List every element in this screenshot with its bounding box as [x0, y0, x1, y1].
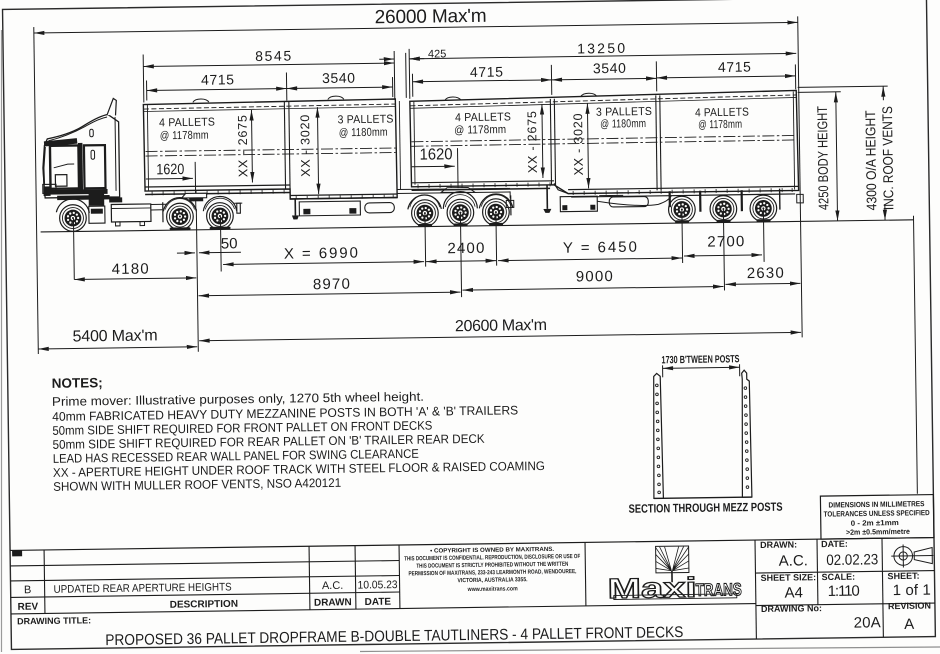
svg-text:A4: A4: [784, 584, 803, 601]
svg-text:DRAWN: DRAWN: [314, 597, 352, 609]
svg-text:1620: 1620: [419, 146, 452, 163]
svg-text:2400: 2400: [447, 240, 484, 258]
svg-text:8545: 8545: [255, 47, 291, 64]
svg-text:SHEET:: SHEET:: [887, 571, 919, 581]
svg-text:www.maxitrans.com: www.maxitrans.com: [467, 586, 518, 593]
svg-text:A: A: [904, 616, 914, 633]
svg-text:UPDATED REAR APERTURE HEIGHTS: UPDATED REAR APERTURE HEIGHTS: [54, 581, 232, 595]
svg-text:INC. ROOF VENTS: INC. ROOF VENTS: [879, 106, 896, 210]
svg-text:20A: 20A: [854, 614, 881, 631]
svg-text:@ 1178mm: @ 1178mm: [160, 130, 209, 143]
svg-text:DRAWN:: DRAWN:: [760, 539, 797, 550]
svg-text:50: 50: [221, 235, 238, 252]
svg-text:VICTORIA, AUSTRALIA 3355.: VICTORIA, AUSTRALIA 3355.: [458, 577, 528, 584]
svg-text:3 PALLETS: 3 PALLETS: [338, 114, 394, 127]
svg-text:4300 O/A HEIGHT: 4300 O/A HEIGHT: [862, 110, 879, 211]
svg-text:13250: 13250: [577, 40, 625, 57]
svg-text:XX - 3020: XX - 3020: [571, 113, 586, 175]
svg-text:XX - 2675: XX - 2675: [236, 115, 251, 177]
svg-text:8970: 8970: [313, 276, 350, 294]
svg-text:TRANS: TRANS: [696, 579, 742, 600]
svg-text:A.C.: A.C.: [322, 580, 344, 592]
svg-text:02.02.23: 02.02.23: [826, 551, 878, 569]
svg-text:3 PALLETS: 3 PALLETS: [596, 106, 652, 119]
svg-text:DATE:: DATE:: [821, 539, 848, 549]
svg-text:DRAWING TITLE:: DRAWING TITLE:: [17, 615, 91, 626]
svg-text:1620: 1620: [156, 161, 184, 178]
svg-text:2630: 2630: [747, 265, 784, 283]
svg-text:26000 Max'm: 26000 Max'm: [375, 6, 487, 29]
svg-text:10.05.23: 10.05.23: [358, 579, 398, 592]
svg-text:1730 B'TWEEN POSTS: 1730 B'TWEEN POSTS: [661, 353, 739, 366]
svg-text:DRAWING No:: DRAWING No:: [761, 603, 822, 614]
svg-text:9000: 9000: [576, 268, 613, 286]
svg-text:2700: 2700: [707, 233, 744, 251]
svg-text:@ 1178mm: @ 1178mm: [698, 119, 742, 132]
svg-text:DATE: DATE: [365, 597, 392, 608]
svg-text:1:110: 1:110: [828, 583, 860, 600]
svg-text:4 PALLETS: 4 PALLETS: [695, 107, 749, 120]
svg-text:>2m ±0.5mm/metre: >2m ±0.5mm/metre: [846, 527, 910, 537]
svg-text:@ 1180mm: @ 1180mm: [339, 127, 388, 140]
svg-text:@ 1180mm: @ 1180mm: [600, 118, 646, 131]
svg-text:XX - 2675: XX - 2675: [525, 111, 540, 173]
svg-text:X = 6990: X = 6990: [284, 245, 358, 263]
svg-text:3540: 3540: [593, 60, 626, 76]
svg-text:1 of 1: 1 of 1: [893, 582, 931, 600]
svg-text:• COPYRIGHT IS OWNED BY MAXITR: • COPYRIGHT IS OWNED BY MAXITRANS.: [430, 547, 554, 555]
svg-text:3540: 3540: [322, 70, 355, 86]
svg-text:5400 Max'm: 5400 Max'm: [72, 327, 157, 345]
svg-text:4180: 4180: [112, 260, 149, 278]
svg-text:4715: 4715: [201, 71, 234, 87]
svg-text:Y = 6450: Y = 6450: [563, 239, 637, 257]
svg-text:4250 BODY HEIGHT: 4250 BODY HEIGHT: [814, 106, 831, 211]
svg-text:NOTES;: NOTES;: [52, 375, 103, 391]
svg-text:SHEET SIZE:: SHEET SIZE:: [760, 572, 816, 583]
svg-text:TOLERANCES UNLESS SPECIFIED: TOLERANCES UNLESS SPECIFIED: [824, 508, 931, 518]
svg-text:SECTION THROUGH MEZZ POSTS: SECTION THROUGH MEZZ POSTS: [628, 500, 782, 516]
svg-text:20600 Max'm: 20600 Max'm: [455, 317, 547, 335]
svg-text:PERMISSION OF MAXITRANS, 233-2: PERMISSION OF MAXITRANS, 233-243 LEARMON…: [408, 569, 576, 577]
svg-text:4715: 4715: [470, 64, 503, 80]
svg-text:4 PALLETS: 4 PALLETS: [159, 117, 215, 130]
svg-text:SCALE:: SCALE:: [821, 572, 855, 582]
svg-text:4 PALLETS: 4 PALLETS: [455, 111, 511, 124]
svg-text:REV: REV: [18, 602, 39, 613]
svg-text:SHOWN WITH MULLER ROOF VENTS,: SHOWN WITH MULLER ROOF VENTS, NSO A42012…: [53, 476, 341, 494]
svg-text:@ 1178mm: @ 1178mm: [454, 124, 506, 137]
svg-text:A.C.: A.C.: [779, 552, 808, 569]
svg-text:4715: 4715: [718, 59, 751, 75]
svg-text:B: B: [24, 584, 32, 596]
svg-text:PROPOSED 36 PALLET DROPFRAME B: PROPOSED 36 PALLET DROPFRAME B-DOUBLE TA…: [105, 624, 683, 649]
svg-text:DESCRIPTION: DESCRIPTION: [170, 599, 238, 611]
svg-text:REVISION: REVISION: [888, 601, 931, 612]
svg-text:XX - 3020: XX - 3020: [298, 115, 313, 177]
